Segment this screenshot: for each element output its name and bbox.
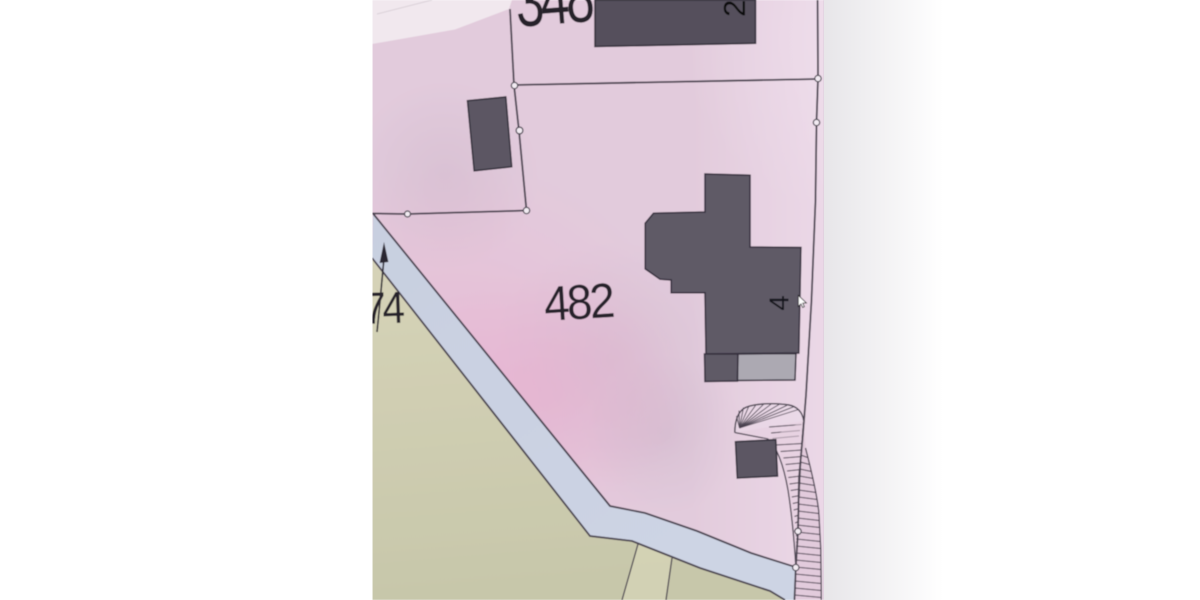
- svg-text:348: 348: [512, 0, 596, 43]
- svg-text:482: 482: [542, 274, 615, 333]
- svg-text:74: 74: [363, 283, 405, 335]
- svg-text:2: 2: [717, 0, 752, 17]
- svg-text:4: 4: [763, 295, 794, 310]
